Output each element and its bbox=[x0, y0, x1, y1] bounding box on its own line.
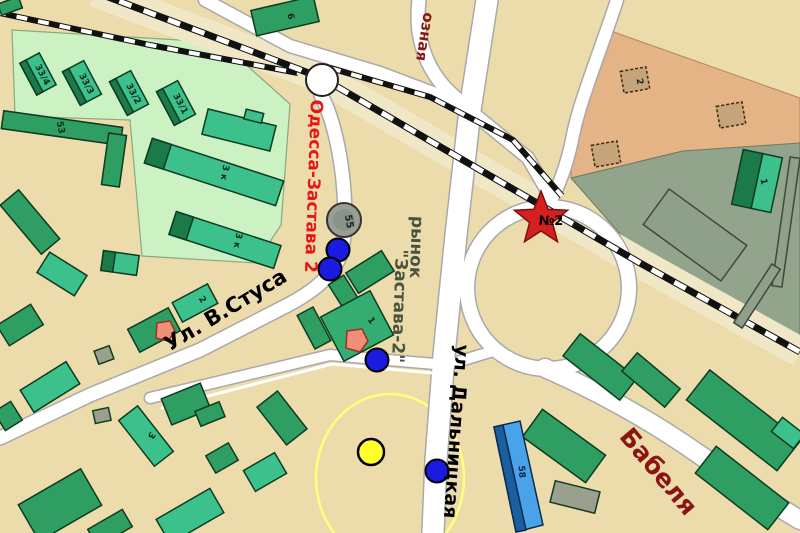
map-viewport[interactable]: №2 Одесса-Застава 2 озная Ул. В.Стуса ул… bbox=[0, 0, 800, 533]
blue-stop-marker[interactable] bbox=[319, 258, 342, 281]
star-label: №2 bbox=[539, 214, 564, 229]
station-circle[interactable] bbox=[306, 64, 338, 96]
building-gray bbox=[93, 407, 111, 423]
blue-stop-marker[interactable] bbox=[366, 349, 389, 372]
market-label-name: "Застава-2" bbox=[387, 249, 411, 363]
svg-text:58: 58 bbox=[515, 465, 526, 478]
city-map-canvas[interactable]: №2 Одесса-Застава 2 озная Ул. В.Стуса ул… bbox=[0, 0, 800, 533]
yellow-stop-marker[interactable] bbox=[358, 439, 384, 465]
building bbox=[101, 251, 139, 276]
